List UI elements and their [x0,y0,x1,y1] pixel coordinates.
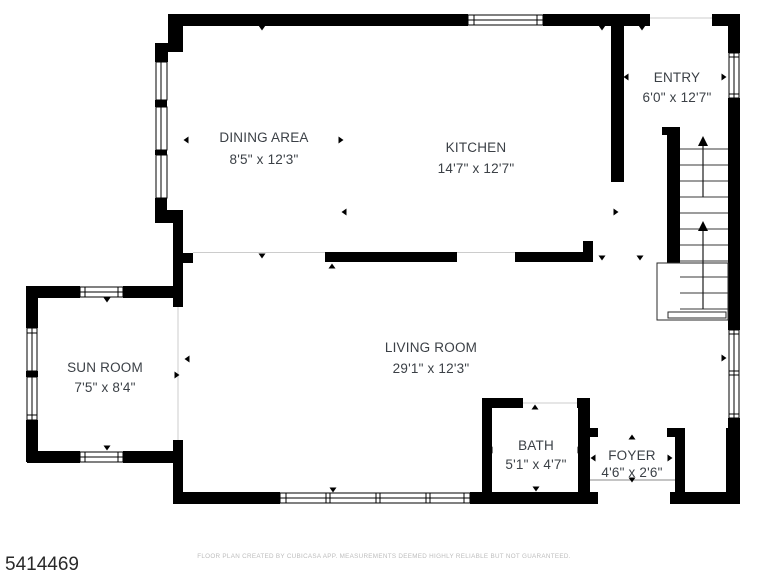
wall-segment [667,135,680,263]
opening-marker [599,256,606,261]
opening-marker [637,256,644,261]
room-dims-sun-room: 7'5" x 8'4" [74,380,135,395]
room-label-sun-room: SUN ROOM [67,360,143,375]
wall-segment [183,253,193,263]
opening-marker [533,487,540,492]
room-dims-bath: 5'1" x 4'7" [505,457,566,472]
opening-marker [259,254,266,259]
wall-segment [325,252,457,262]
room-label-kitchen: KITCHEN [446,140,507,155]
opening-marker [722,74,727,81]
opening-marker [104,446,111,451]
opening-marker [722,355,727,362]
wall-segment [168,14,468,26]
wall-segment [155,100,167,107]
wall-segment [588,428,598,437]
window-entry-right [729,53,739,98]
floor-plan-drawing: DINING AREA 8'5" x 12'3" KITCHEN 14'7" x… [0,0,768,576]
opening-marker [104,298,111,303]
opening-marker [532,405,539,410]
wall-segment [27,451,80,463]
stair-up-arrow-head [698,136,708,146]
wall-segment [123,451,177,463]
window-kitchen-top [468,15,543,25]
wall-segment [482,398,523,408]
window-sunroom-top [80,287,123,297]
wall-segment [26,371,38,377]
opening-marker [629,435,636,440]
stair-landing-step [668,312,726,318]
wall-segment [155,150,167,155]
opening-marker [668,455,673,462]
room-dims-entry: 6'0" x 12'7" [643,90,712,105]
wall-segment [515,252,583,262]
stair-up-arrow-head [698,221,708,231]
opening-marker [330,488,337,493]
wall-segment [728,98,740,330]
wall-segment [726,428,740,503]
window-sunroom-bottom [80,452,123,462]
opening-marker [599,26,606,31]
window-dining-bay [156,62,167,198]
opening-marker [329,264,336,269]
room-dims-kitchen: 14'7" x 12'7" [438,161,515,176]
wall-segment [712,14,740,26]
opening-marker [339,137,344,144]
room-dims-living-room: 29'1" x 12'3" [393,361,470,376]
opening-lines [178,18,712,480]
wall-segment [583,241,593,262]
wall-segment [543,14,650,26]
wall-segment [728,26,740,53]
wall-segment [728,418,740,428]
wall-segment [675,428,685,503]
room-label-foyer: FOYER [608,448,656,463]
opening-marker [614,209,619,216]
opening-marker [259,26,266,31]
walls [26,14,740,504]
stair-landing [657,263,728,320]
wall-segment [155,198,167,210]
room-label-entry: ENTRY [654,70,701,85]
listing-id: 5414469 [5,554,79,575]
opening-marker [175,372,180,379]
room-label-dining-area: DINING AREA [219,130,308,145]
wall-segment [173,492,280,504]
wall-segment [168,26,183,52]
opening-marker [342,209,347,216]
wall-segment [123,286,177,298]
opening-marker [184,137,189,144]
room-dims-dining-area: 8'5" x 12'3" [230,152,299,167]
opening-marker [639,26,646,31]
window-living-right [729,330,739,418]
room-dims-foyer: 4'6" x 2'6" [601,465,662,480]
opening-marker [624,74,629,81]
opening-marker [185,356,190,363]
floor-plan-page: DINING AREA 8'5" x 12'3" KITCHEN 14'7" x… [0,0,768,576]
wall-segment [155,43,168,62]
disclaimer-text: FLOOR PLAN CREATED BY CUBICASA APP. MEAS… [197,553,571,560]
opening-marker [591,455,596,462]
window-living-bottom [280,493,470,503]
room-label-living-room: LIVING ROOM [385,340,477,355]
wall-segment [611,26,624,182]
room-label-bath: BATH [518,438,554,453]
wall-segment [662,127,680,135]
wall-segment [26,286,38,328]
